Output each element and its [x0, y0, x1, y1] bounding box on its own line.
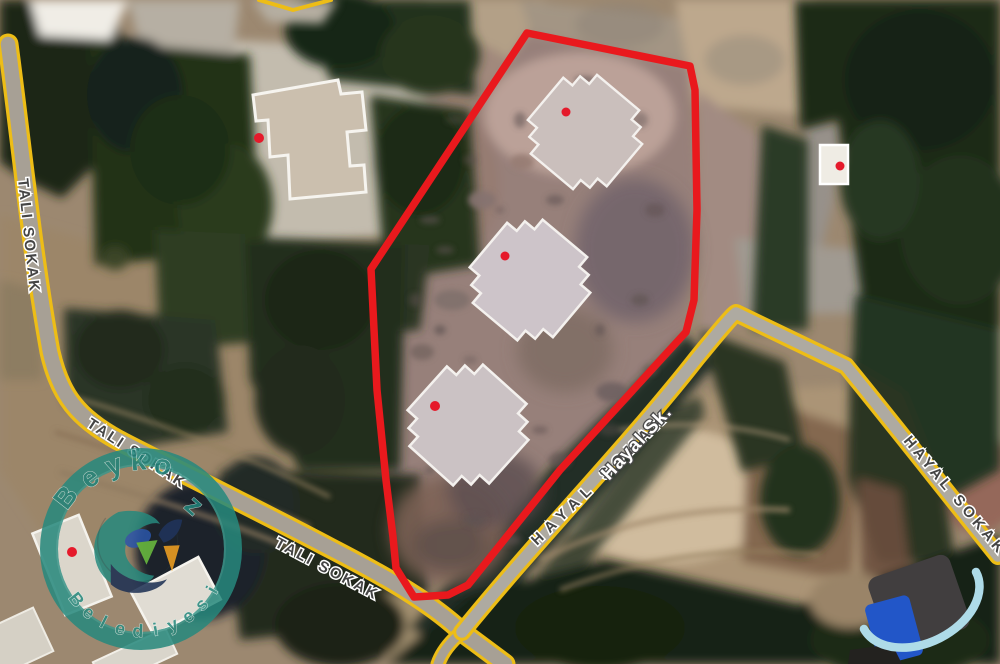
svg-text:k: k: [129, 444, 147, 476]
svg-text:d: d: [132, 621, 144, 641]
